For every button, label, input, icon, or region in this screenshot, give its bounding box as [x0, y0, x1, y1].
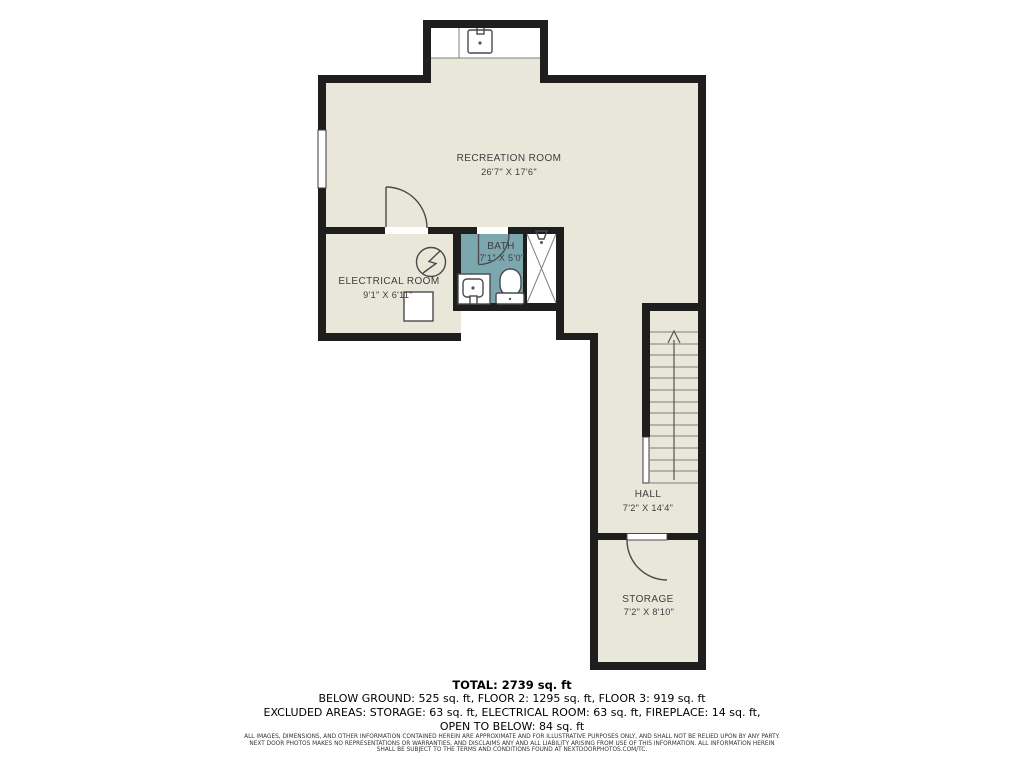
- room-name: STORAGE: [622, 594, 674, 605]
- room-name: BATH: [487, 241, 515, 252]
- floor-areas-line: BELOW GROUND: 525 sq. ft, FLOOR 2: 1295 …: [0, 692, 1024, 706]
- disclaimer: ALL IMAGES, DIMENSIONS, AND OTHER INFORM…: [0, 734, 1024, 754]
- room-name: HALL: [635, 489, 662, 500]
- area-summary: TOTAL: 2739 sq. ft BELOW GROUND: 525 sq.…: [0, 678, 1024, 734]
- total-area: TOTAL: 2739 sq. ft: [0, 678, 1024, 692]
- room-dims: 26'7" X 17'6": [481, 167, 537, 177]
- room-name: RECREATION ROOM: [457, 153, 562, 164]
- window: [318, 130, 326, 188]
- floor-plan: RECREATION ROOM 26'7" X 17'6" ELECTRICAL…: [0, 0, 1024, 768]
- floor-plan-page: RECREATION ROOM 26'7" X 17'6" ELECTRICAL…: [0, 0, 1024, 768]
- vanity-sink-icon: [458, 274, 490, 304]
- room-dims: 7'2" X 14'4": [623, 503, 673, 513]
- room-dims: 7'1" X 5'0": [479, 253, 524, 263]
- disclaimer-line: NEXT DOOR PHOTOS MAKES NO REPRESENTATION…: [0, 741, 1024, 748]
- room-dims: 7'2" X 8'10": [624, 607, 674, 617]
- disclaimer-line: ALL IMAGES, DIMENSIONS, AND OTHER INFORM…: [0, 734, 1024, 741]
- excluded-areas-line2: OPEN TO BELOW: 84 sq. ft: [0, 720, 1024, 734]
- stair-railing: [643, 437, 649, 483]
- room-dims: 9'1" X 6'11": [363, 290, 413, 300]
- counter: [431, 26, 541, 58]
- room-name: ELECTRICAL ROOM: [338, 276, 439, 287]
- excluded-areas-line: EXCLUDED AREAS: STORAGE: 63 sq. ft, ELEC…: [0, 706, 1024, 720]
- disclaimer-line: SHALL BE SUBJECT TO THE TERMS AND CONDIT…: [0, 747, 1024, 754]
